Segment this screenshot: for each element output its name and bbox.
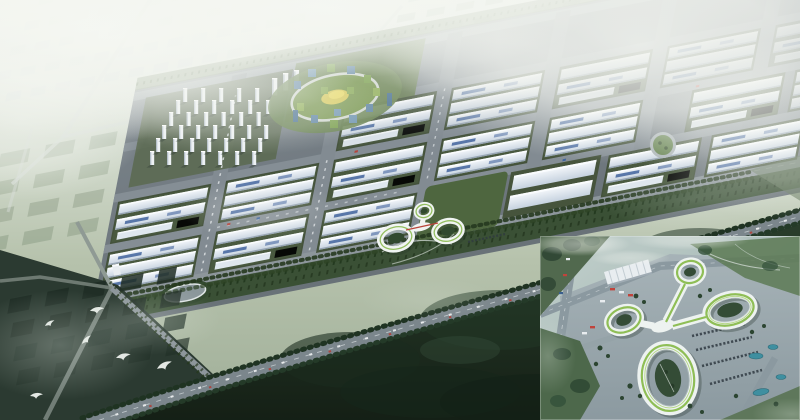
inset-detail-view: [520, 230, 800, 420]
screenshot-stage: [0, 0, 800, 420]
main-aerial-render: [0, 0, 800, 420]
